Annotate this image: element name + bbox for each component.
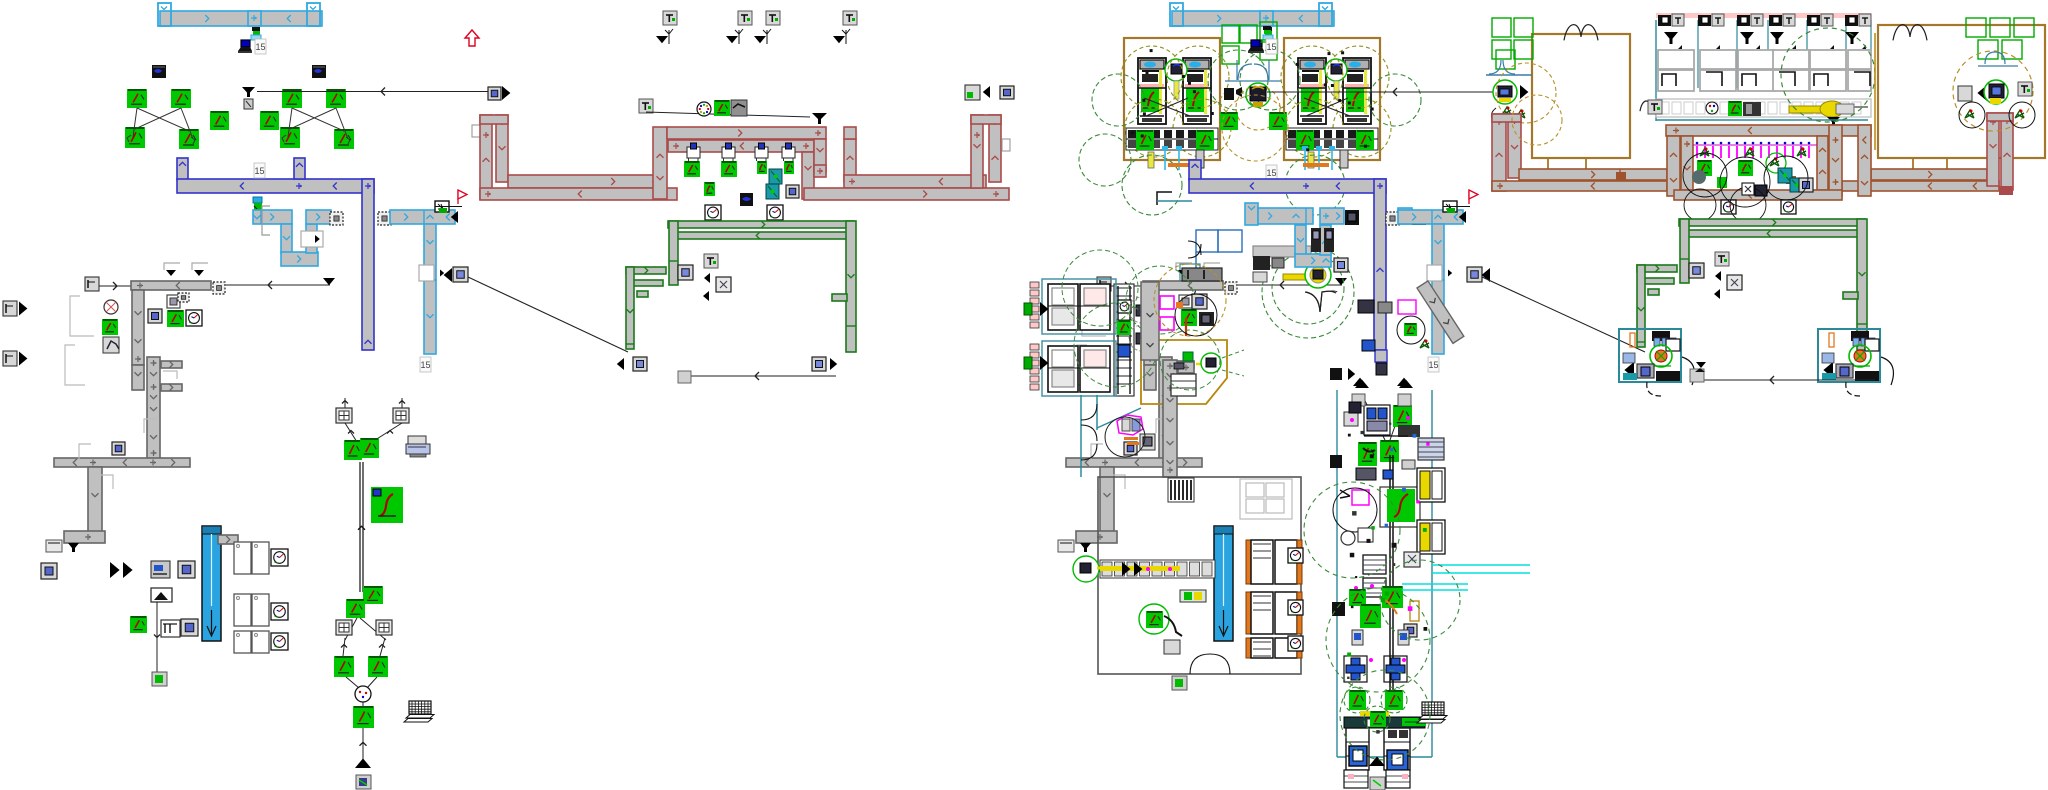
svg-text:15: 15 [1428,360,1438,370]
svg-text:15: 15 [255,42,265,52]
svg-text:15: 15 [1266,168,1276,178]
svg-text:15: 15 [420,360,430,370]
svg-text:15: 15 [1266,42,1276,52]
svg-text:15: 15 [254,166,264,176]
